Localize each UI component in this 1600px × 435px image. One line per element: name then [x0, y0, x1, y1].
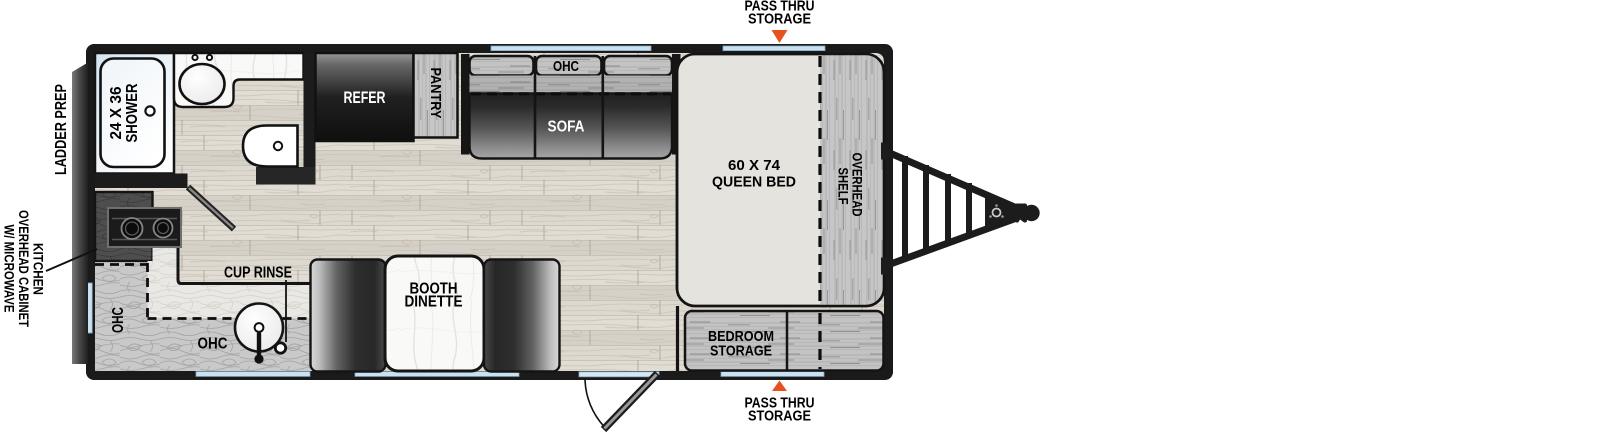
svg-text:DINETTE: DINETTE — [405, 294, 463, 311]
svg-text:SOFA: SOFA — [548, 119, 585, 136]
svg-text:REFER: REFER — [344, 89, 386, 107]
svg-text:QUEEN BED: QUEEN BED — [712, 174, 796, 191]
svg-text:PANTRY: PANTRY — [427, 68, 443, 119]
svg-text:24 X 36: 24 X 36 — [108, 86, 125, 139]
svg-text:SHOWER: SHOWER — [124, 84, 141, 143]
svg-text:STORAGE: STORAGE — [710, 343, 772, 360]
svg-text:STORAGE: STORAGE — [748, 12, 811, 28]
svg-text:OHC: OHC — [553, 58, 579, 75]
svg-text:CUP RINSE: CUP RINSE — [224, 265, 292, 282]
svg-text:60 X 74: 60 X 74 — [728, 157, 781, 174]
svg-text:OVERHEAD: OVERHEAD — [850, 153, 866, 217]
svg-text:LADDER PREP: LADDER PREP — [53, 84, 70, 175]
svg-text:OHC: OHC — [110, 307, 127, 333]
svg-text:SHELF: SHELF — [836, 168, 852, 205]
svg-text:OHC: OHC — [198, 336, 228, 353]
svg-text:W/ MICROWAVE: W/ MICROWAVE — [2, 225, 18, 313]
svg-text:STORAGE: STORAGE — [748, 409, 811, 425]
